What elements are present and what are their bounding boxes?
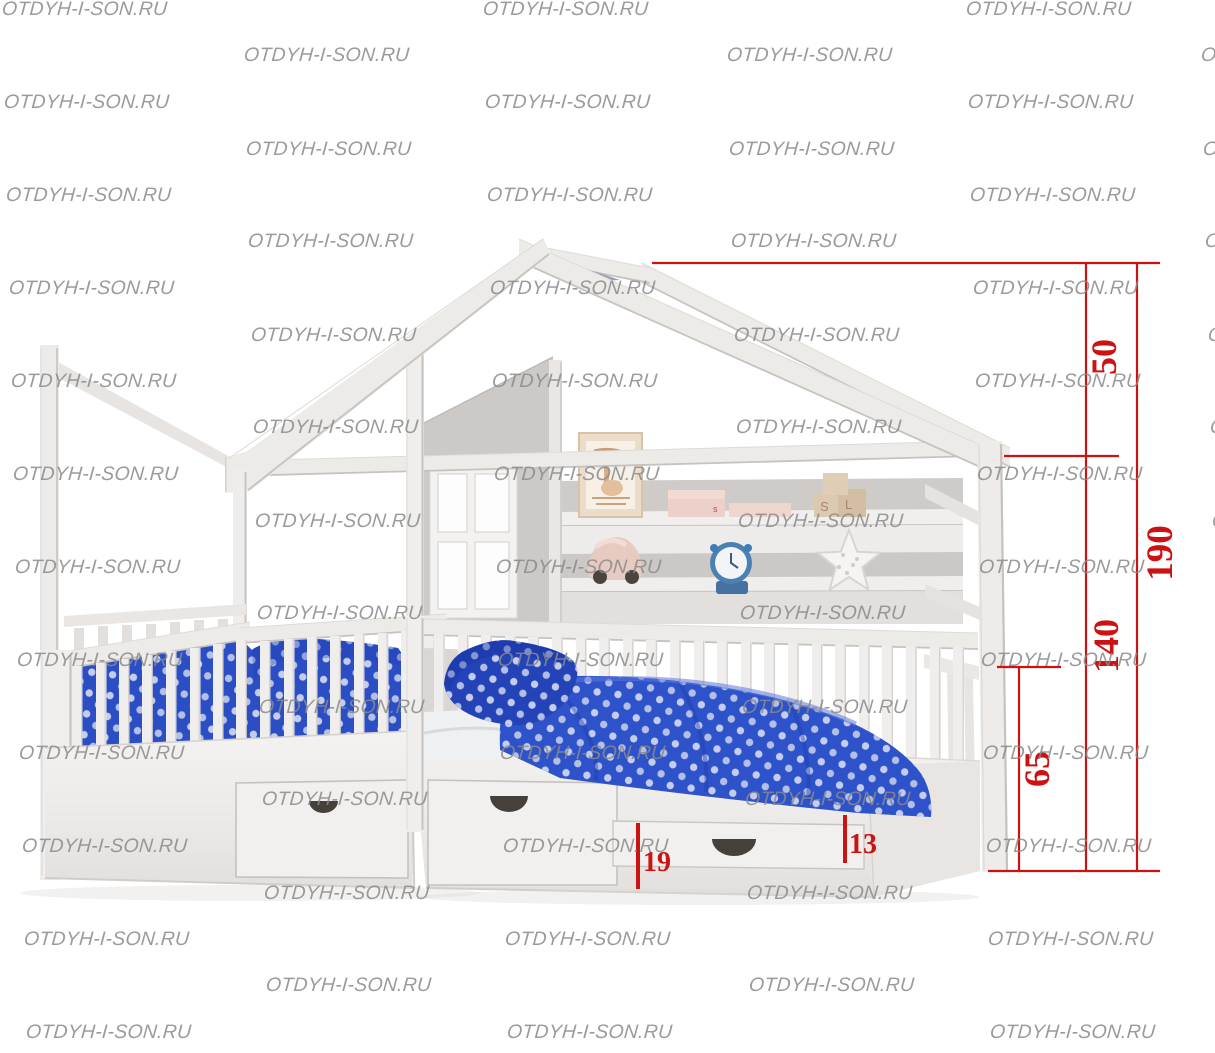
svg-text:13: 13 — [849, 829, 877, 860]
svg-text:s: s — [713, 504, 718, 514]
svg-text:190: 190 — [1140, 525, 1181, 581]
